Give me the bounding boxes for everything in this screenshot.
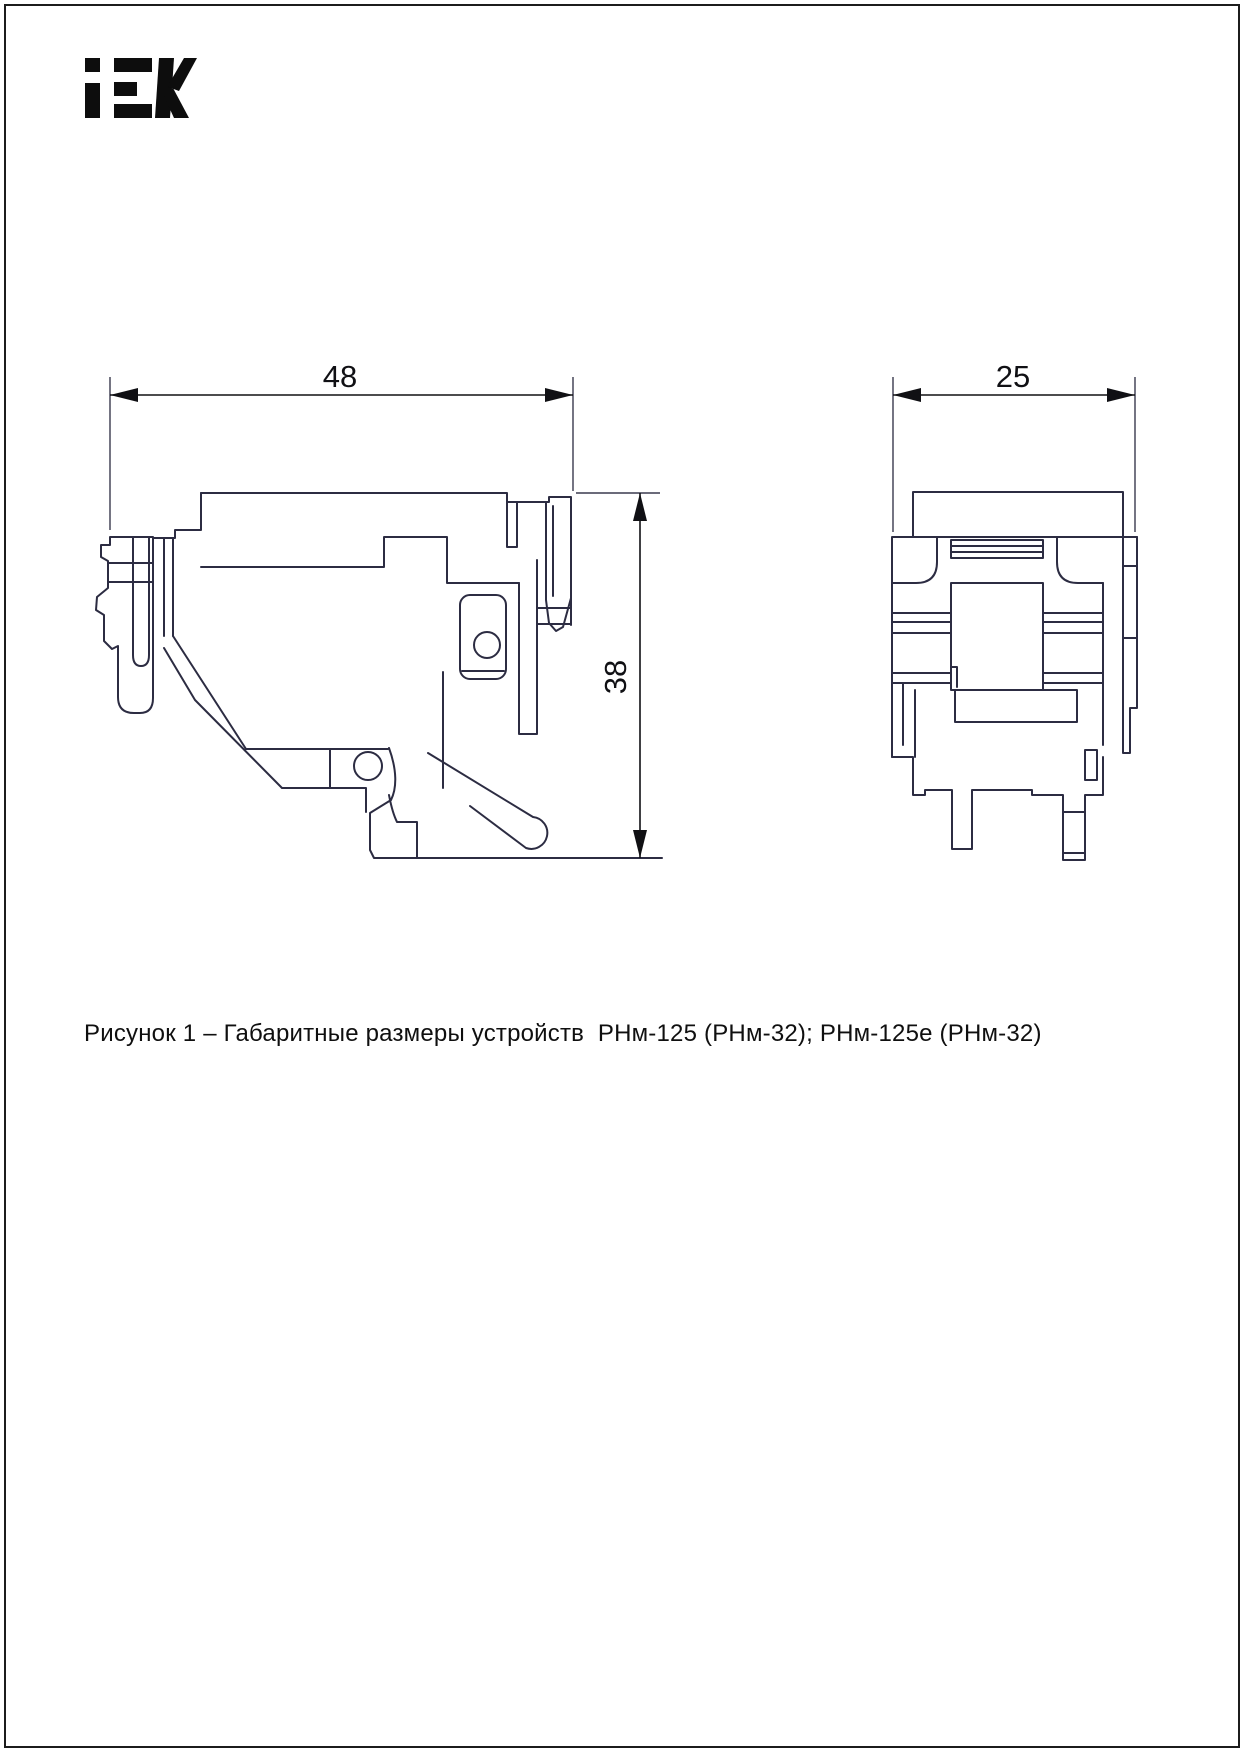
dimension-annotations: 48 38 25 (110, 359, 1135, 858)
front-view-fillet-right (1057, 537, 1103, 583)
side-view-top-band (201, 493, 571, 631)
dim48-label: 48 (323, 359, 357, 394)
terminal-block (460, 595, 506, 679)
vent-slots (951, 540, 1043, 558)
din-clip-u-slot (133, 537, 149, 666)
front-view-cap (913, 492, 1123, 537)
side-view-mid-steps (201, 537, 519, 788)
dim48-arrow-right (545, 388, 573, 402)
technical-drawing: 48 38 25 (0, 0, 1244, 1752)
side-view-drawing (96, 493, 662, 858)
front-view-body (892, 537, 1137, 757)
side-view-channel (164, 538, 173, 636)
latch-boot (370, 748, 417, 858)
dim25-arrow-right (1107, 388, 1135, 402)
dim25-arrow-left (893, 388, 921, 402)
dim48-arrow-left (110, 388, 138, 402)
left-detail-lines (892, 613, 951, 757)
right-detail-lines (1043, 613, 1103, 683)
latch-pivot (354, 752, 382, 780)
front-view-drawing (892, 492, 1137, 860)
vent-slot-lines (951, 546, 1043, 552)
dim38-arrow-top (633, 493, 647, 521)
dimension-depth-25: 25 (893, 359, 1135, 532)
right-flange (1123, 537, 1137, 753)
dimension-height-38: 38 (576, 493, 660, 858)
side-view-top-slot (507, 502, 517, 547)
dim38-arrow-bottom (633, 830, 647, 858)
dim38-label: 38 (598, 660, 633, 694)
dimension-width-48: 48 (110, 359, 573, 530)
side-view-top-left-corner (153, 493, 201, 538)
din-clip-division-lines (108, 563, 153, 582)
central-window (951, 583, 1043, 690)
front-view-bottom-profile (892, 757, 1103, 860)
document-page: 48 38 25 Рисунок 1 – Габаритные размеры … (0, 0, 1244, 1752)
side-view-slope (164, 636, 388, 812)
dim25-label: 25 (996, 359, 1030, 394)
figure-caption: Рисунок 1 – Габаритные размеры устройств… (84, 1020, 1042, 1048)
lower-band (955, 690, 1077, 722)
bottom-right-box (1085, 750, 1097, 780)
latch-lever-arm (428, 753, 547, 849)
front-view-fillet-left (892, 537, 937, 583)
dim25-extension-lines (893, 377, 1135, 532)
dim48-extension-lines (110, 377, 573, 530)
terminal-screw (474, 632, 500, 658)
